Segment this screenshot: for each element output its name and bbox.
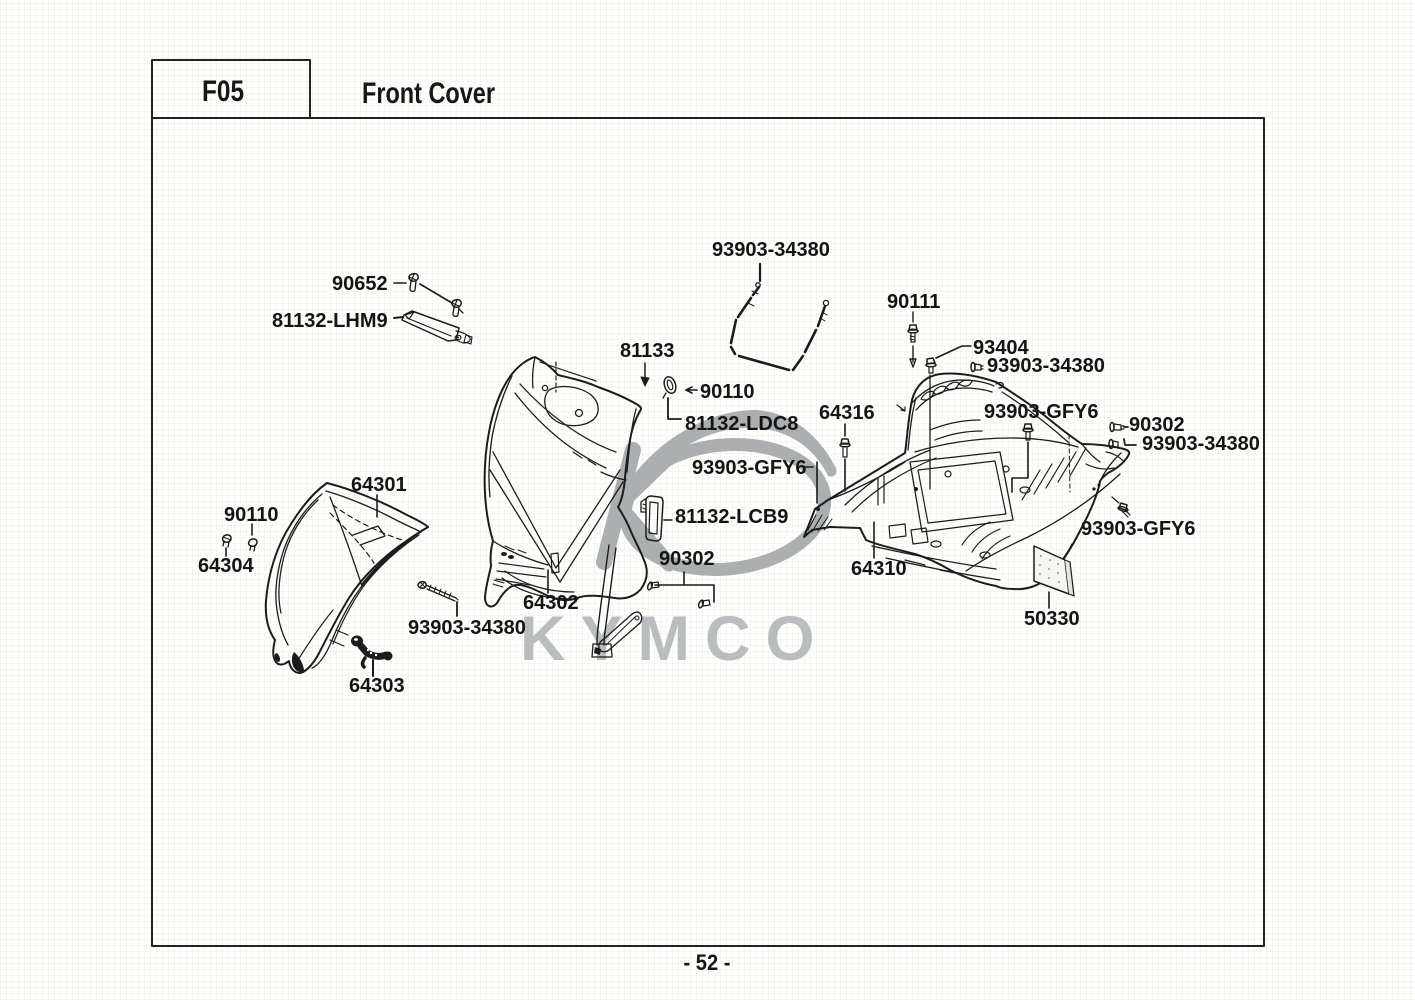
svg-text:64303: 64303: [349, 675, 405, 697]
svg-text:64304: 64304: [198, 555, 254, 577]
svg-text:90110: 90110: [700, 381, 755, 403]
svg-text:81132-LDC8: 81132-LDC8: [685, 413, 798, 435]
svg-text:90110: 90110: [224, 504, 279, 526]
svg-text:81132-LHM9: 81132-LHM9: [272, 310, 388, 332]
svg-text:64302: 64302: [523, 592, 579, 614]
svg-text:81132-LCB9: 81132-LCB9: [675, 506, 788, 528]
svg-text:64316: 64316: [819, 402, 875, 424]
svg-text:93903-GFY6: 93903-GFY6: [692, 457, 807, 479]
svg-text:93903-GFY6: 93903-GFY6: [984, 401, 1099, 423]
svg-text:90302: 90302: [659, 548, 715, 570]
svg-text:Front Cover: Front Cover: [362, 77, 495, 110]
svg-text:93903-34380: 93903-34380: [408, 617, 526, 639]
svg-text:KYMCO: KYMCO: [520, 604, 830, 674]
svg-text:93903-34380: 93903-34380: [1142, 433, 1260, 455]
svg-text:90652: 90652: [332, 273, 388, 295]
svg-text:50330: 50330: [1024, 608, 1080, 630]
svg-text:- 52 -: - 52 -: [684, 950, 731, 975]
svg-text:81133: 81133: [620, 340, 675, 362]
svg-text:93903-34380: 93903-34380: [987, 355, 1105, 377]
svg-text:93903-34380: 93903-34380: [712, 239, 830, 261]
svg-text:64310: 64310: [851, 558, 907, 580]
svg-text:F05: F05: [202, 75, 244, 108]
svg-text:93903-GFY6: 93903-GFY6: [1081, 518, 1196, 540]
svg-text:90111: 90111: [887, 291, 940, 313]
svg-text:64301: 64301: [351, 474, 407, 496]
